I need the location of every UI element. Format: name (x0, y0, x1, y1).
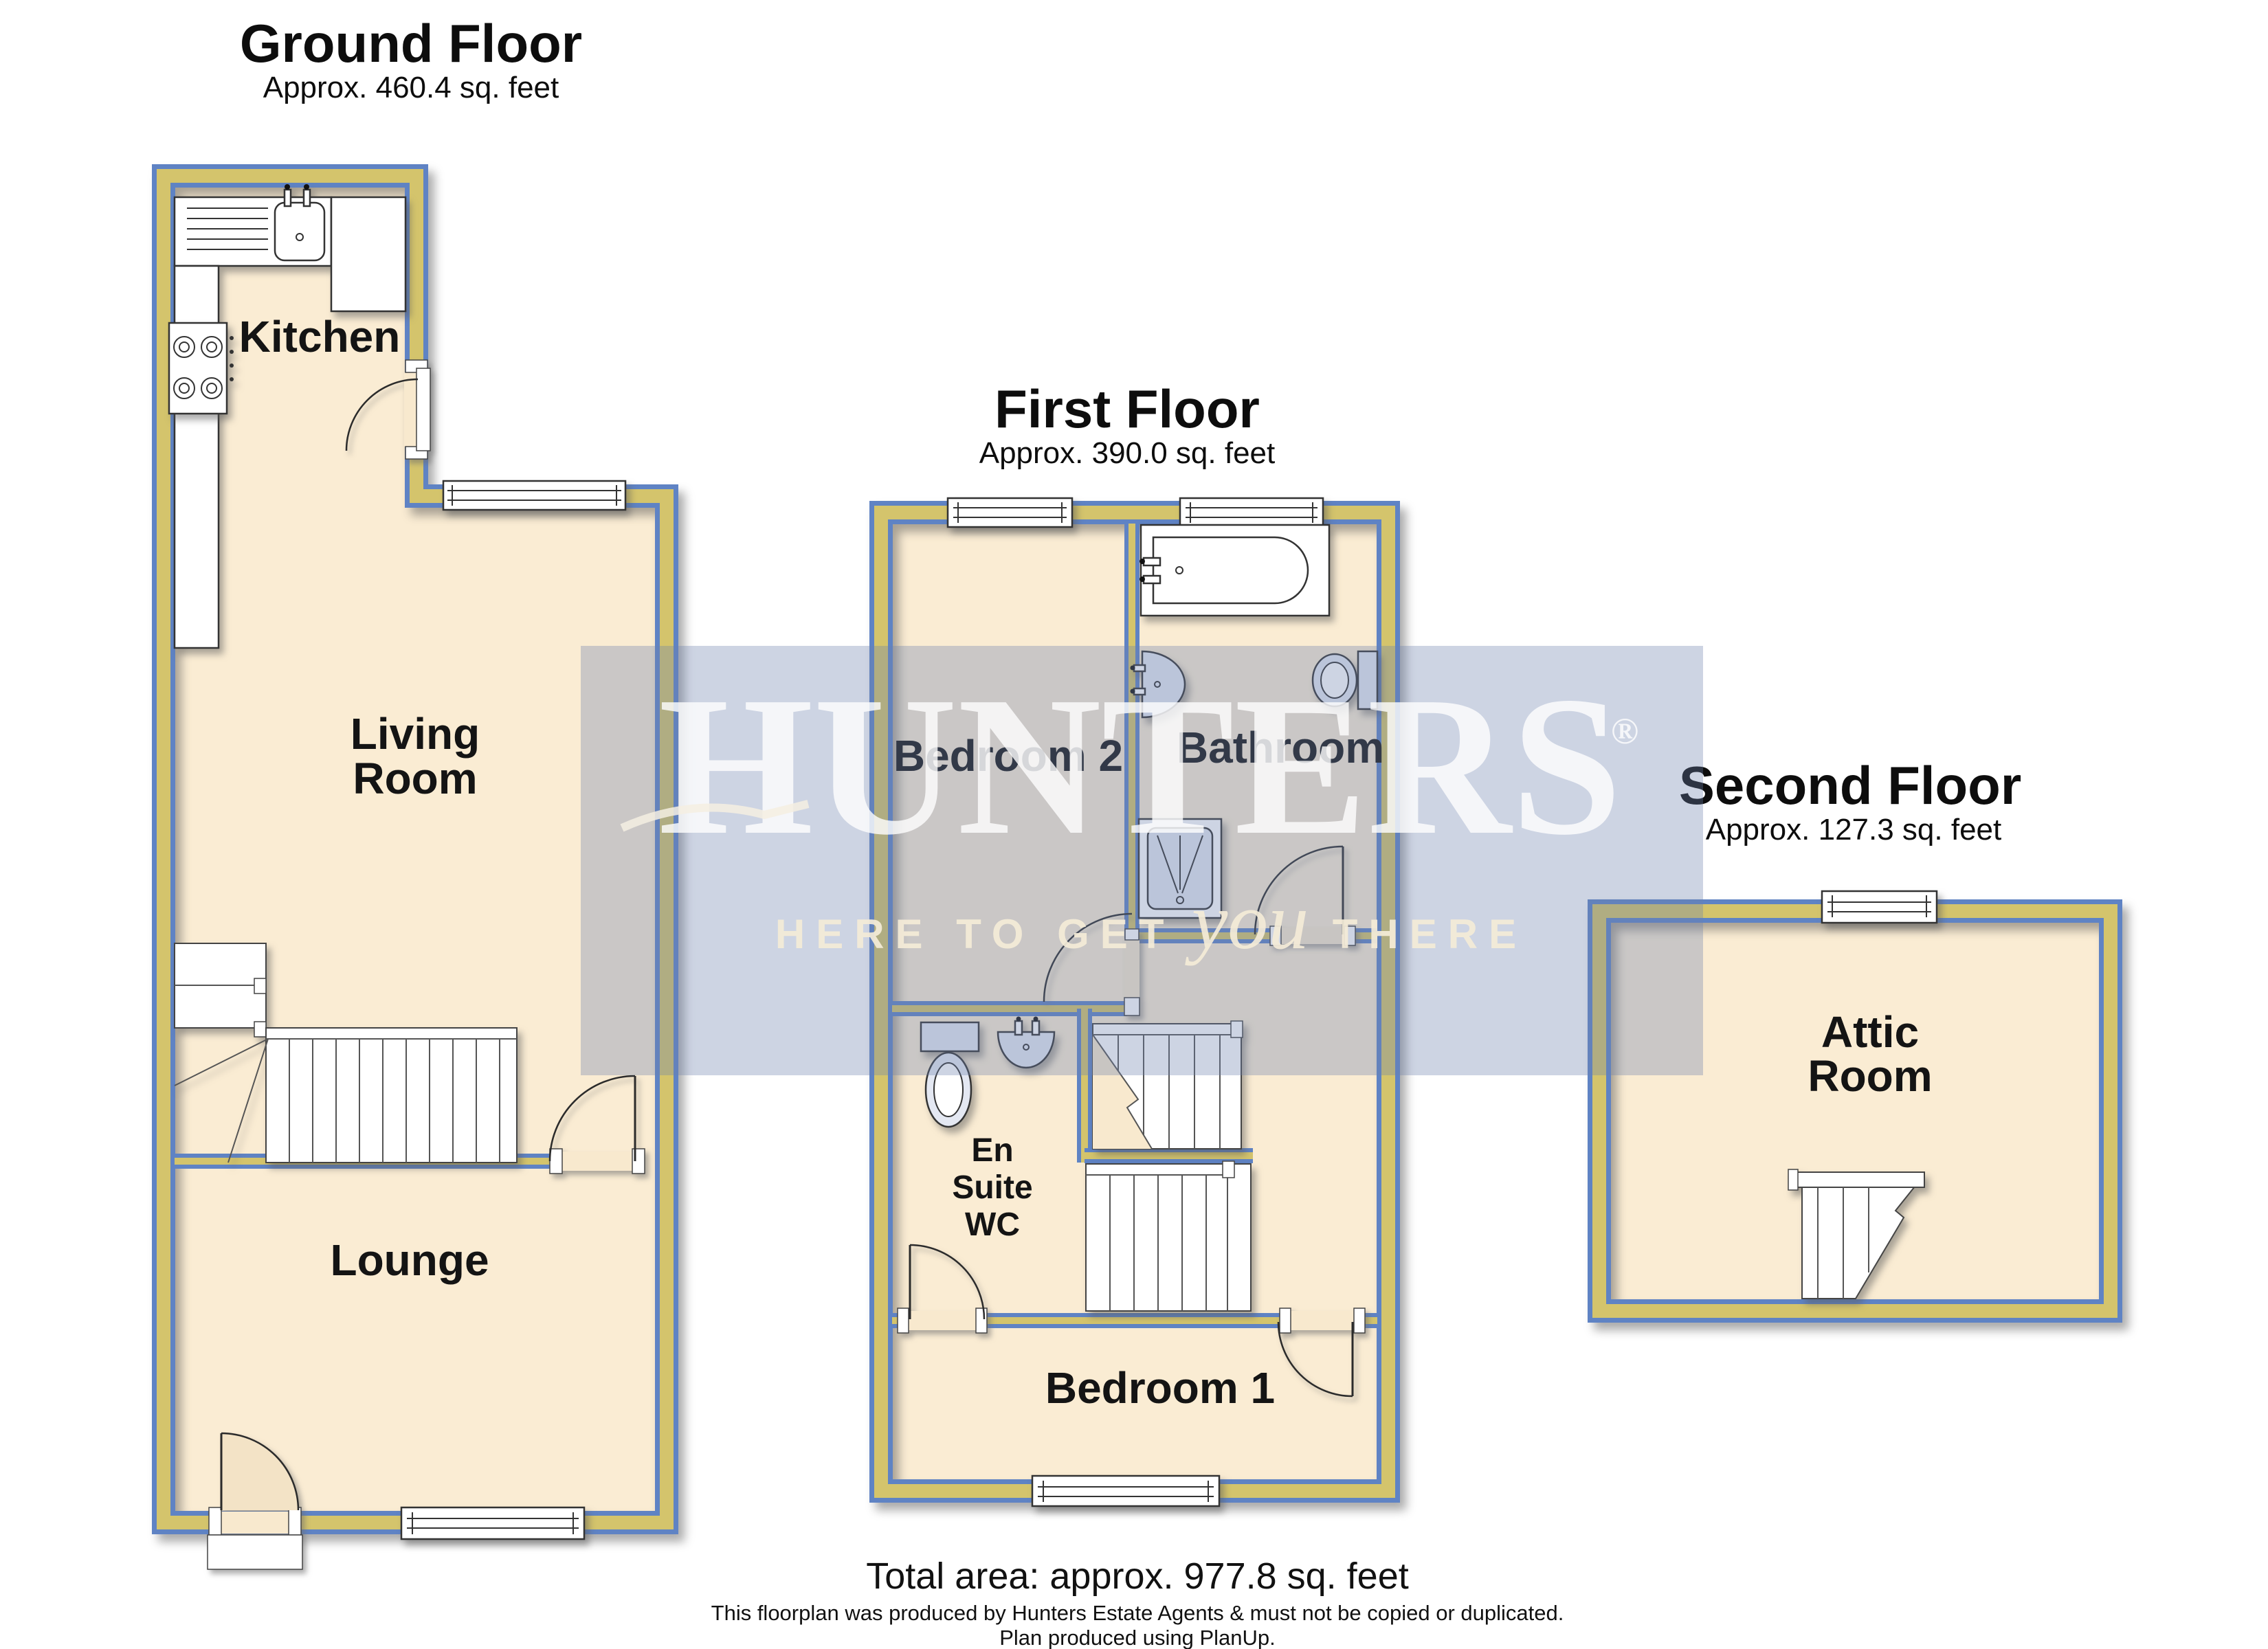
landing-stairs-lower-icon (1086, 1161, 1251, 1311)
attic-window-icon (1822, 891, 1937, 923)
kitchen-hob-icon (169, 323, 234, 414)
hunters-logo-text: HUNTERS (658, 655, 1622, 876)
hunters-watermark: HUNTERS ® HERE TO GET you THERE (581, 646, 1703, 1075)
disclaimer-line1: This floorplan was produced by Hunters E… (711, 1601, 1564, 1625)
living-room-top-window-icon (443, 481, 625, 510)
footer: Total area: approx. 977.8 sq. feet This … (711, 1556, 1564, 1649)
kitchen-sink-icon (175, 184, 331, 266)
disclaimer-line2: Plan produced using PlanUp. (999, 1626, 1276, 1649)
bedroom1-window-icon (1032, 1476, 1219, 1506)
floorplan-page: Ground Floor Approx. 460.4 sq. feet (0, 0, 2268, 1649)
front-door-threshold (208, 1535, 302, 1569)
lounge-window-icon (401, 1507, 584, 1539)
bath-icon (1139, 525, 1329, 616)
first-floor-title: First Floor (994, 379, 1260, 439)
tagline-post: THERE (1333, 911, 1527, 957)
registered-mark-icon: ® (1611, 710, 1638, 752)
ground-floor-area: Approx. 460.4 sq. feet (263, 71, 559, 104)
living-room-label-line1: Living (351, 709, 480, 759)
second-floor-area: Approx. 127.3 sq. feet (1706, 813, 2002, 846)
floorplan-drawing: Ground Floor Approx. 460.4 sq. feet (0, 0, 2268, 1649)
bedroom2-window-icon (948, 498, 1072, 527)
attic-label-line2: Room (1808, 1051, 1932, 1101)
ground-floor-title: Ground Floor (240, 13, 582, 74)
total-area-text: Total area: approx. 977.8 sq. feet (866, 1556, 1409, 1597)
second-floor-title: Second Floor (1679, 755, 2021, 816)
attic-label-line1: Attic (1821, 1007, 1919, 1057)
tagline-pre: HERE TO GET (775, 911, 1175, 957)
ensuite-label-line1: En (971, 1132, 1013, 1169)
kitchen-door-leaf (416, 368, 430, 451)
tagline-script: you (1185, 876, 1309, 966)
ensuite-label-line2: Suite (952, 1169, 1032, 1206)
kitchen-label: Kitchen (239, 312, 401, 361)
bedroom1-label: Bedroom 1 (1045, 1363, 1275, 1413)
first-floor-area: Approx. 390.0 sq. feet (979, 436, 1276, 470)
living-room-label-line2: Room (353, 754, 477, 803)
lounge-label: Lounge (330, 1235, 489, 1285)
bathroom-window-icon (1180, 498, 1323, 527)
ensuite-label-line3: WC (965, 1207, 1020, 1243)
